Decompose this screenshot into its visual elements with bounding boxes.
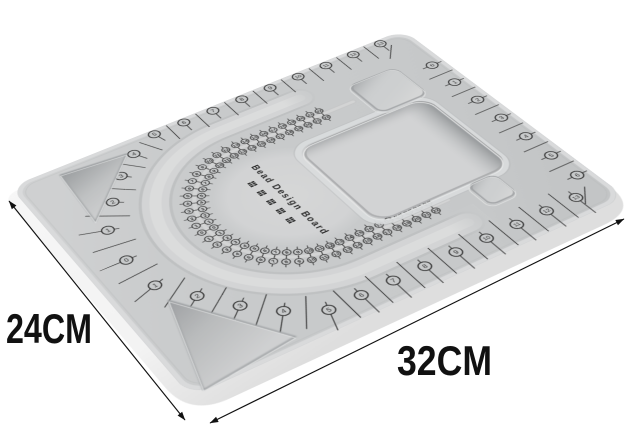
svg-text:24CM: 24CM (6, 305, 92, 352)
svg-text:32CM: 32CM (397, 337, 492, 384)
